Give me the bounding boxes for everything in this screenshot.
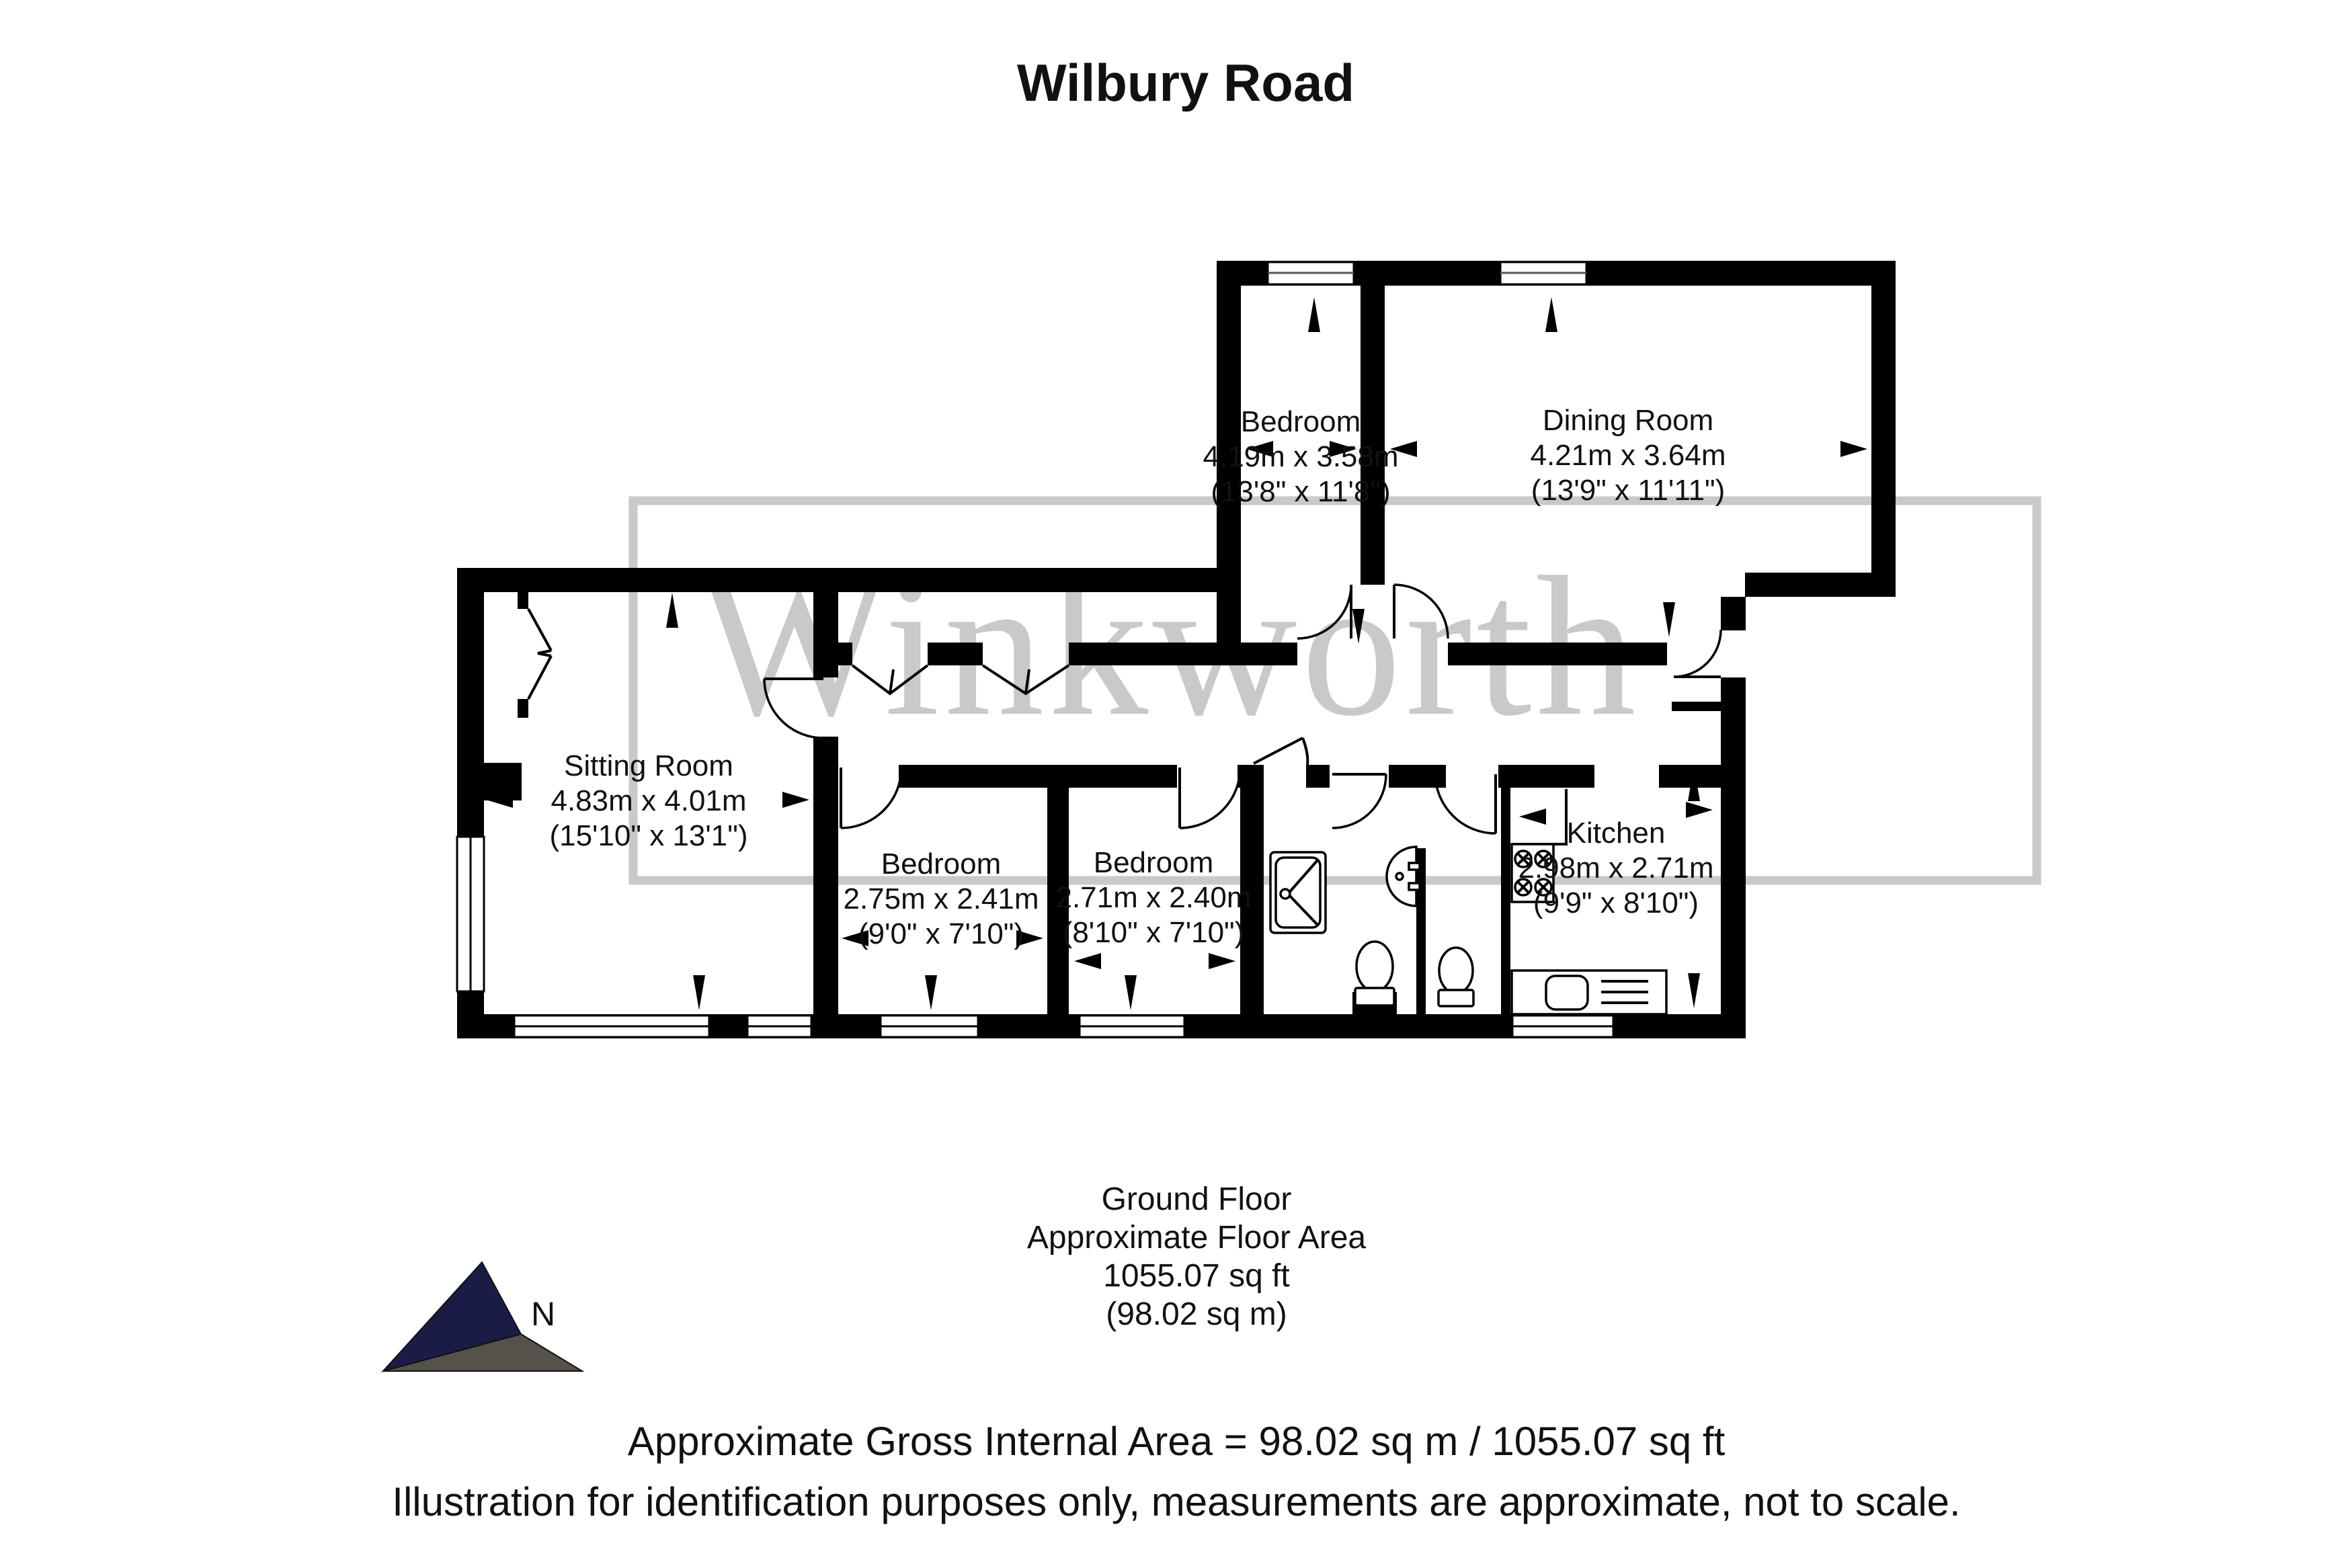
- window-sitting-bottom-a: [514, 1016, 709, 1037]
- window-wc-bottom: [1512, 1016, 1613, 1037]
- arrow-right-icon: [1209, 953, 1235, 969]
- winkworth-watermark: Winkworth: [633, 501, 2037, 880]
- north-compass: N: [383, 1262, 582, 1371]
- room-metric: 2.75m x 2.41m: [843, 882, 1039, 915]
- floorplan-drawing: Winkworth: [0, 0, 2352, 1568]
- floorplan-page: Winkworth: [0, 0, 2352, 1568]
- arrow-up-icon: [666, 593, 678, 628]
- arrow-left-icon: [1519, 809, 1546, 825]
- room-imperial: (15'10" x 13'1"): [549, 819, 747, 852]
- floor-area-sqm: (98.02 sq m): [1106, 1296, 1287, 1332]
- room-name: Sitting Room: [564, 749, 733, 782]
- arrow-down-icon: [693, 975, 705, 1010]
- arrow-down-icon: [1125, 975, 1137, 1010]
- arrow-down-icon: [925, 975, 937, 1010]
- footer-disclaimer: Approximate Gross Internal Area = 98.02 …: [392, 1419, 1960, 1524]
- arrow-left-icon: [1074, 953, 1101, 969]
- arrow-up-icon: [1545, 297, 1557, 332]
- page-title: Wilbury Road: [1017, 53, 1354, 112]
- window-sitting-left: [457, 837, 484, 991]
- room-imperial: (13'8" x 11'8"): [1211, 475, 1390, 508]
- room-name: Bedroom: [881, 848, 1002, 880]
- room-label-bedroom1: Bedroom 2.75m x 2.41m (9'0" x 7'10"): [843, 848, 1039, 950]
- room-name: Bedroom: [1241, 405, 1361, 438]
- wash-basin: [1387, 847, 1420, 906]
- room-imperial: (8'10" x 7'10"): [1063, 916, 1245, 949]
- bay-casement: [528, 609, 551, 699]
- room-imperial: (9'9" x 8'10"): [1533, 886, 1699, 919]
- arrow-right-icon: [782, 792, 809, 808]
- door-hall-entrance: [1674, 630, 1721, 677]
- room-metric: 4.83m x 4.01m: [551, 784, 746, 817]
- window-bedroom2-bottom: [1080, 1016, 1184, 1037]
- room-label-bedroom2: Bedroom 2.71m x 2.40m (8'10" x 7'10"): [1055, 846, 1251, 949]
- window-top-bedroom: [1268, 262, 1354, 284]
- floor-summary: Ground Floor Approximate Floor Area 1055…: [1027, 1182, 1367, 1332]
- window-bedroom1-bottom: [881, 1016, 978, 1037]
- chimney-breast: [483, 763, 522, 800]
- north-label: N: [531, 1295, 555, 1333]
- arrow-right-icon: [1686, 802, 1713, 818]
- floor-name: Ground Floor: [1102, 1182, 1292, 1217]
- window-sitting-bottom-b: [747, 1016, 811, 1037]
- arrow-right-icon: [1840, 441, 1867, 457]
- floor-area-sqft: 1055.07 sq ft: [1103, 1258, 1290, 1294]
- room-metric: 4.21m x 3.64m: [1530, 439, 1726, 472]
- arrow-down-icon: [1663, 602, 1675, 637]
- arrow-up-icon: [1308, 297, 1320, 332]
- footer-disclaimer-line: Illustration for identification purposes…: [392, 1479, 1960, 1524]
- door-bedroom1: [841, 768, 901, 828]
- door-bedroom2: [1180, 768, 1240, 828]
- room-imperial: (9'0" x 7'10"): [858, 917, 1024, 950]
- toilet-wc: [1438, 948, 1473, 1006]
- window-dining: [1500, 262, 1586, 284]
- room-name: Dining Room: [1543, 404, 1713, 437]
- room-label-sitting: Sitting Room 4.83m x 4.01m (15'10" x 13'…: [549, 749, 747, 852]
- room-metric: 2.98m x 2.71m: [1518, 852, 1713, 884]
- room-name: Kitchen: [1567, 817, 1666, 850]
- room-label-kitchen: Kitchen 2.98m x 2.71m (9'9" x 8'10"): [1518, 817, 1713, 919]
- room-label-dining: Dining Room 4.21m x 3.64m (13'9" x 11'11…: [1530, 404, 1726, 507]
- toilet-shower-room: [1355, 942, 1394, 1005]
- room-metric: 2.71m x 2.40m: [1055, 881, 1251, 914]
- door-shower-room: [1332, 774, 1386, 828]
- footer-area-line: Approximate Gross Internal Area = 98.02 …: [628, 1419, 1726, 1464]
- shower-tray: [1270, 852, 1326, 933]
- floor-area-label: Approximate Floor Area: [1027, 1220, 1367, 1255]
- arrow-down-icon: [1688, 973, 1700, 1008]
- room-imperial: (13'9" x 11'11"): [1531, 474, 1726, 507]
- room-name: Bedroom: [1094, 846, 1214, 879]
- room-metric: 4.19m x 3.58m: [1203, 440, 1398, 473]
